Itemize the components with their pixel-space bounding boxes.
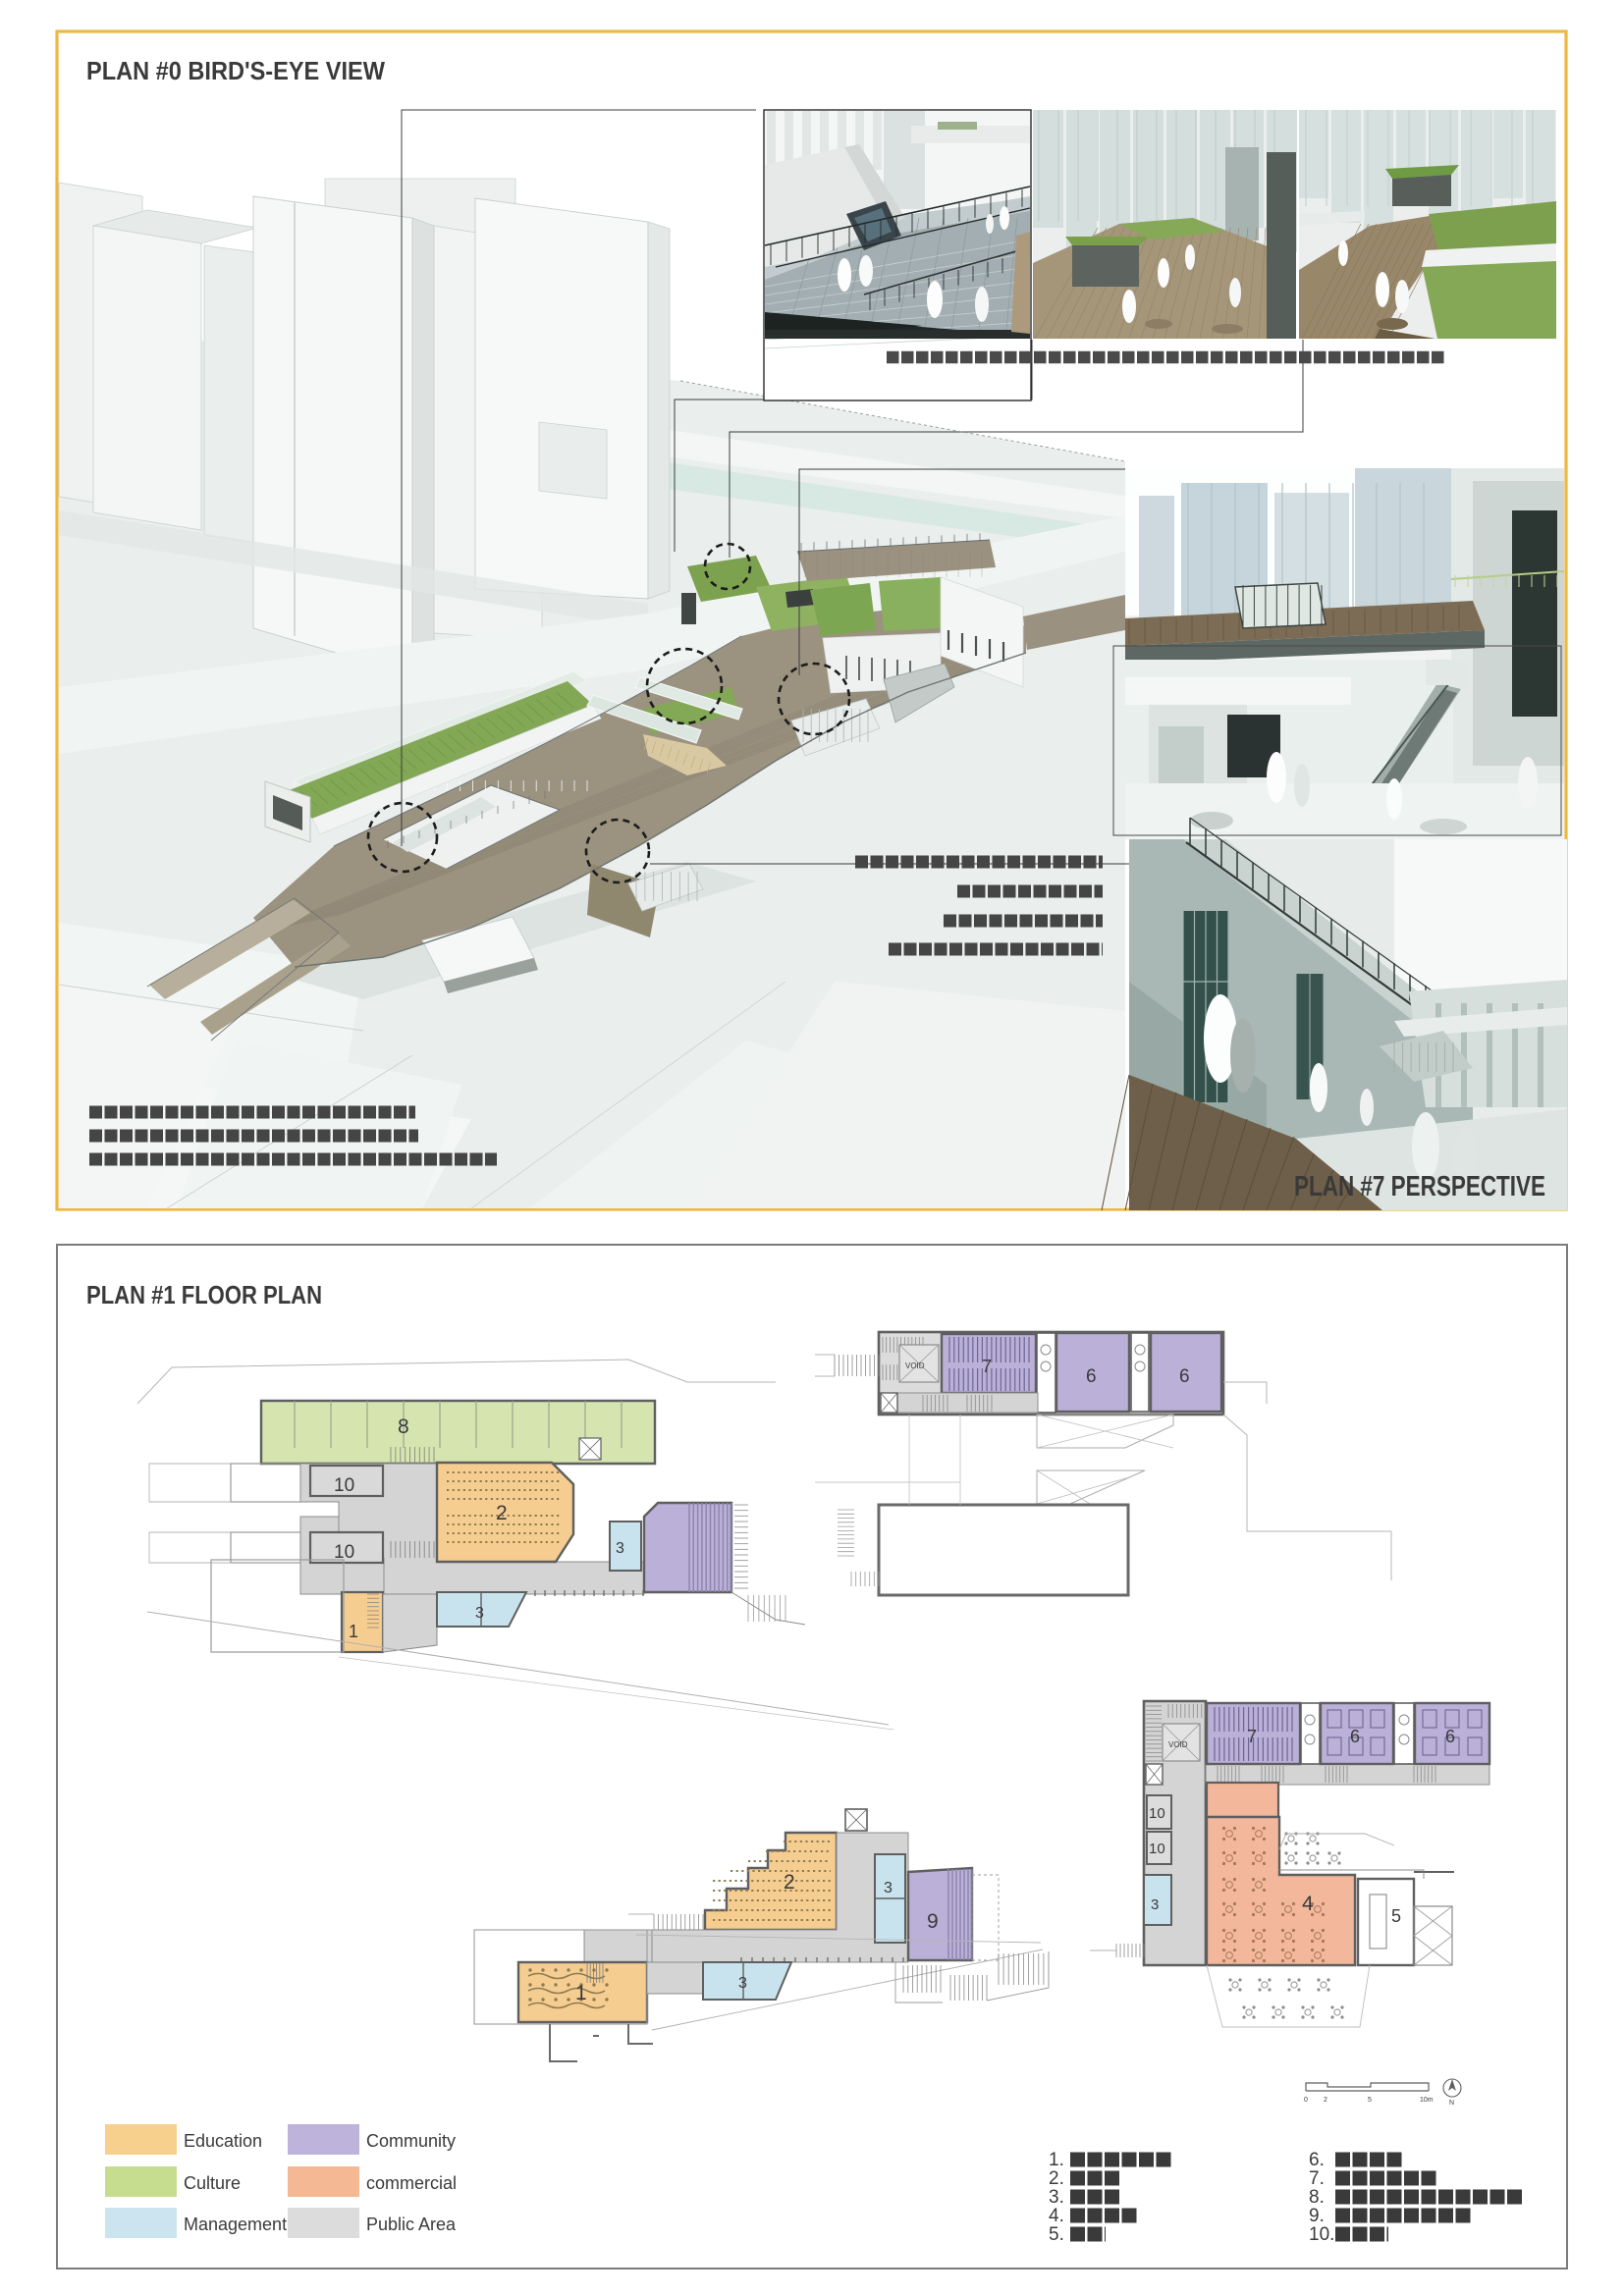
svg-text:Culture: Culture — [184, 2173, 241, 2193]
svg-text:3: 3 — [884, 1880, 893, 1896]
svg-text:VOID: VOID — [905, 1362, 925, 1370]
svg-text:2: 2 — [496, 1502, 508, 1524]
svg-text:1.: 1. — [1049, 2150, 1064, 2170]
svg-text:commercial: commercial — [366, 2173, 457, 2193]
svg-text:8.: 8. — [1309, 2187, 1325, 2208]
svg-text:Management: Management — [184, 2215, 287, 2234]
svg-text:Community: Community — [366, 2131, 456, 2151]
svg-text:3.: 3. — [1049, 2187, 1064, 2208]
svg-text:PLAN #7 PERSPECTIVE: PLAN #7 PERSPECTIVE — [1294, 1171, 1545, 1202]
svg-text:3: 3 — [475, 1605, 484, 1622]
svg-text:PLAN #0 BIRD'S-EYE VIEW: PLAN #0 BIRD'S-EYE VIEW — [86, 56, 385, 85]
svg-text:1: 1 — [349, 1622, 358, 1641]
svg-text:PLAN #1 FLOOR PLAN: PLAN #1 FLOOR PLAN — [86, 1280, 322, 1309]
svg-text:6: 6 — [1445, 1727, 1455, 1746]
svg-text:4.: 4. — [1049, 2206, 1064, 2226]
svg-text:VOID: VOID — [1168, 1740, 1188, 1749]
svg-text:10: 10 — [334, 1475, 354, 1496]
svg-text:7: 7 — [1247, 1727, 1257, 1746]
svg-text:10: 10 — [1149, 1841, 1165, 1857]
svg-text:6: 6 — [1086, 1366, 1097, 1387]
svg-text:3: 3 — [738, 1975, 747, 1992]
svg-text:6: 6 — [1179, 1366, 1190, 1387]
svg-text:2: 2 — [784, 1871, 795, 1894]
svg-text:2: 2 — [1324, 2097, 1327, 2104]
svg-text:Public Area: Public Area — [366, 2215, 457, 2234]
svg-text:7: 7 — [982, 1357, 992, 1376]
svg-text:3: 3 — [1151, 1896, 1159, 1913]
svg-text:10m: 10m — [1420, 2097, 1434, 2104]
svg-text:3: 3 — [616, 1540, 624, 1557]
svg-text:1: 1 — [575, 1982, 587, 2004]
svg-text:10: 10 — [1149, 1805, 1165, 1822]
svg-text:10.: 10. — [1309, 2224, 1334, 2245]
svg-text:5: 5 — [1368, 2097, 1372, 2104]
svg-text:5.: 5. — [1049, 2224, 1064, 2245]
svg-text:6.: 6. — [1309, 2150, 1325, 2170]
svg-text:6: 6 — [1350, 1727, 1360, 1746]
svg-text:8: 8 — [398, 1415, 409, 1438]
svg-text:2.: 2. — [1049, 2168, 1064, 2189]
svg-text:5: 5 — [1391, 1906, 1401, 1926]
svg-text:N: N — [1449, 2100, 1454, 2107]
svg-text:0: 0 — [1304, 2097, 1308, 2104]
svg-text:7.: 7. — [1309, 2168, 1325, 2189]
svg-text:9: 9 — [927, 1910, 939, 1933]
svg-text:Education: Education — [184, 2131, 262, 2151]
svg-text:9.: 9. — [1309, 2206, 1325, 2226]
svg-text:4: 4 — [1302, 1893, 1314, 1915]
